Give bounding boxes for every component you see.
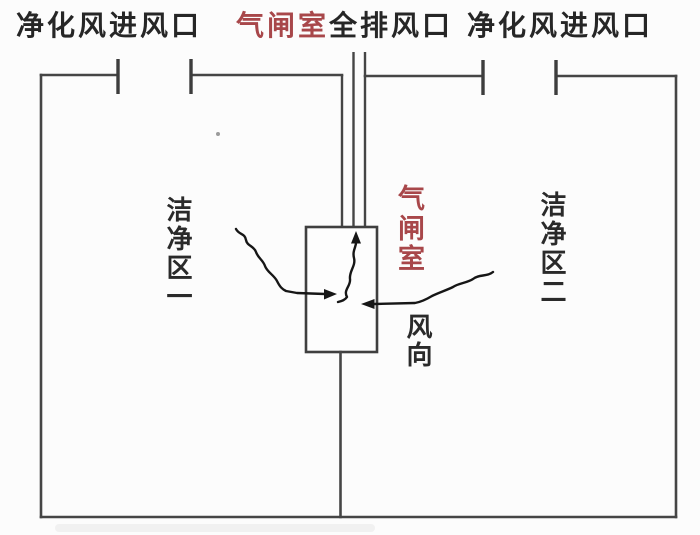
label-wind-direction-text: 风向 (403, 313, 433, 369)
label-right-air-inlet-text: 净化风进风口 (467, 10, 653, 41)
label-airlock-exhaust-black-text: 全排风口 (329, 10, 453, 41)
label-right-air-inlet: 净化风进风口 (467, 10, 653, 42)
airlock-box (306, 227, 377, 352)
label-airlock-exhaust-red-text: 气闸室 (236, 10, 329, 41)
label-left-air-inlet-text: 净化风进风口 (16, 10, 202, 41)
label-airlock-room: 气闸室 (390, 184, 429, 274)
label-clean-zone-one: 洁净区一 (160, 196, 197, 312)
label-wind-direction: 风向 (400, 313, 437, 369)
diagram-drawing-layer (0, 0, 700, 535)
cleanroom-airlock-diagram: 净化风进风口 气闸室全排风口 净化风进风口 洁净区一 洁净区二 气闸室 风向 (0, 0, 700, 535)
label-clean-zone-two-text: 洁净区二 (537, 191, 567, 307)
label-left-air-inlet: 净化风进风口 (16, 10, 202, 42)
label-airlock-room-text: 气闸室 (394, 184, 424, 274)
stray-dot (216, 132, 220, 136)
scan-smudge (55, 524, 375, 532)
label-clean-zone-two: 洁净区二 (534, 191, 571, 307)
airflow-right-arrow (374, 272, 493, 304)
exhaust-duct (342, 52, 365, 227)
air-inlet-openings (118, 59, 556, 95)
label-clean-zone-one-text: 洁净区一 (163, 196, 193, 312)
label-airlock-exhaust-outlet: 气闸室全排风口 (236, 10, 453, 42)
